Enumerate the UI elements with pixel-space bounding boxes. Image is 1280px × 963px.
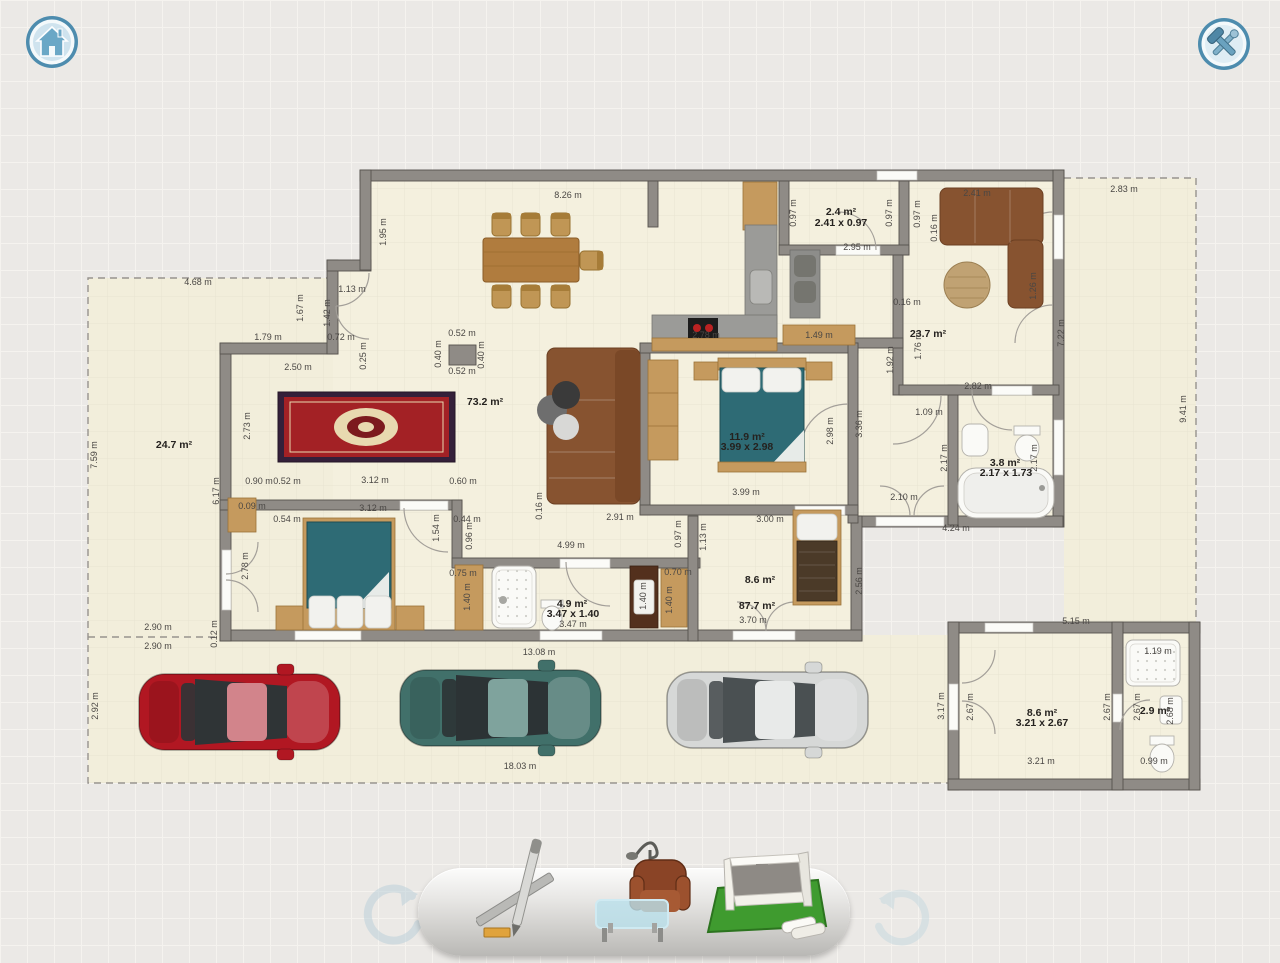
dimension-label: 0.16 m (893, 297, 921, 307)
dimension-label: 0.12 m (209, 620, 219, 648)
dimension-label: 4.99 m (557, 540, 585, 550)
dimension-label: 3.99 m (732, 487, 760, 497)
dimension-label: 3.17 m (936, 692, 946, 720)
car-silver[interactable] (667, 662, 868, 758)
redo-arrow-icon (862, 878, 942, 958)
dimension-label: 2.73 m (242, 412, 252, 440)
dimension-label: 3.12 m (359, 503, 387, 513)
dimension-label: 2.98 m (825, 417, 835, 445)
dimension-label: 0.52 m (448, 366, 476, 376)
dimension-label: 1.79 m (254, 332, 282, 342)
dimension-label: 2.17 m (939, 444, 949, 472)
pencil-ruler-icon (476, 832, 572, 950)
dimension-label: 2.41 m (963, 188, 991, 198)
bedroom3-bed[interactable] (793, 510, 841, 605)
dimension-label: 2.68 m (1165, 697, 1175, 725)
dimension-label: 6.17 m (211, 477, 221, 505)
dimension-label: 0.25 m (358, 342, 368, 370)
dimension-label: 1.40 m (638, 582, 648, 610)
dimension-label: 9.41 m (1178, 395, 1188, 423)
room-area-label: 2.17 x 1.73 (980, 467, 1033, 479)
oriental-rug[interactable] (278, 392, 455, 462)
dimension-label: 18.03 m (504, 761, 537, 771)
dimension-label: 7.22 m (1056, 319, 1066, 347)
room-area-label: 3.21 x 2.67 (1016, 717, 1069, 729)
dimension-label: 1.09 m (915, 407, 943, 417)
dimension-label: 1.13 m (698, 523, 708, 551)
dimension-label: 2.90 m (144, 641, 172, 651)
dimension-label: 13.08 m (523, 647, 556, 657)
tools-hammer-screwdriver-icon (1196, 16, 1252, 72)
round-wood-rug[interactable] (944, 262, 990, 308)
dimension-label: 7.59 m (89, 441, 99, 469)
dimension-label: 2.83 m (1110, 184, 1138, 194)
draw-tool-button[interactable] (476, 832, 572, 955)
dimension-label: 3.00 m (756, 514, 784, 524)
dimension-label: 1.19 m (1144, 646, 1172, 656)
tool-tray (418, 868, 850, 956)
dimension-label: 1.67 m (295, 294, 305, 322)
dimension-label: 3.47 m (559, 619, 587, 629)
dimension-label: 5.15 m (1062, 616, 1090, 626)
dimension-label: 1.13 m (338, 284, 366, 294)
dimension-label: 0.54 m (273, 514, 301, 524)
dimension-label: 1.92 m (885, 346, 895, 374)
dimension-label: 3.36 m (854, 410, 864, 438)
room-area-label: 24.7 m² (156, 439, 193, 451)
dimension-label: 2.82 m (964, 381, 992, 391)
room-area-label: 3.99 x 2.98 (721, 441, 774, 453)
dimension-label: 1.95 m (378, 218, 388, 246)
furniture-tool-button[interactable] (578, 824, 698, 955)
column (449, 345, 476, 365)
tools-button[interactable] (1196, 16, 1252, 72)
dimension-label: 2.10 m (890, 492, 918, 502)
dimension-label: 1.40 m (462, 583, 472, 611)
dimension-label: 2.78 m (240, 552, 250, 580)
dimension-label: 2.78 m (692, 330, 720, 340)
dimension-label: 2.56 m (854, 567, 864, 595)
dimension-label: 1.49 m (805, 330, 833, 340)
car-red[interactable] (139, 664, 340, 760)
floorplan-app: { "header": { "home_button_icon": "home-… (0, 0, 1280, 960)
dimension-label: 4.24 m (942, 523, 970, 533)
floorplan-canvas[interactable]: 8.26 m1.95 m0.97 m2.4 m²2.41 x 0.970.97 … (0, 0, 1280, 960)
dimension-label: 0.16 m (929, 214, 939, 242)
dimension-label: 2.90 m (144, 622, 172, 632)
room-area-label: 8.6 m² (745, 574, 776, 586)
dimension-label: 3.21 m (1027, 756, 1055, 766)
armchair-table-lamp-icon (578, 824, 698, 950)
room-area-label: 2.41 x 0.97 (815, 217, 868, 229)
home-icon (24, 14, 80, 70)
dimension-label: 0.40 m (476, 341, 486, 369)
room-area-label: 87.7 m² (739, 600, 776, 612)
dimension-label: 0.09 m (238, 501, 266, 511)
home-button[interactable] (24, 14, 80, 70)
dimension-label: 0.97 m (673, 520, 683, 548)
dimension-label: 2.95 m (843, 242, 871, 252)
dimension-label: 3.12 m (361, 475, 389, 485)
bedroom1-furniture[interactable] (648, 358, 832, 472)
dimension-label: 0.72 m (327, 332, 355, 342)
dimension-label: 0.96 m (464, 522, 474, 550)
dimension-label: 1.76 m (913, 332, 923, 360)
rooms-tool-button[interactable] (700, 840, 830, 949)
dimension-label: 0.52 m (448, 328, 476, 338)
room-area-label: 73.2 m² (467, 396, 504, 408)
dimension-label: 0.75 m (449, 568, 477, 578)
dimension-label: 0.99 m (1140, 756, 1168, 766)
dimension-label: 1.54 m (431, 514, 441, 542)
dimension-label: 8.26 m (554, 190, 582, 200)
dimension-label: 2.92 m (90, 692, 100, 720)
dimension-label: 3.70 m (739, 615, 767, 625)
dimension-label: 1.26 m (1028, 272, 1038, 300)
dimension-label: 1.40 m (664, 586, 674, 614)
dimension-label: 2.50 m (284, 362, 312, 372)
dimension-label: 0.16 m (534, 492, 544, 520)
dimension-label: 2.91 m (606, 512, 634, 522)
dimension-label: 0.97 m (912, 200, 922, 228)
dimension-label: 0.40 m (433, 340, 443, 368)
dimension-label: 0.52 m (273, 476, 301, 486)
dimension-label: 1.42 m (322, 299, 332, 327)
dimension-label: 2.67 m (965, 693, 975, 721)
dimension-label: 2.67 m (1102, 693, 1112, 721)
dimension-label: 0.70 m (664, 567, 692, 577)
car-teal[interactable] (400, 660, 601, 756)
dimension-label: 2.17 m (1029, 444, 1039, 472)
dimension-label: 0.60 m (449, 476, 477, 486)
dimension-label: 4.68 m (184, 277, 212, 287)
dimension-label: 0.90 m (245, 476, 273, 486)
dimension-label: 0.97 m (788, 199, 798, 227)
house-model-on-grass-icon (700, 840, 830, 944)
dimension-label: 0.97 m (884, 199, 894, 227)
redo-button[interactable] (862, 878, 942, 963)
